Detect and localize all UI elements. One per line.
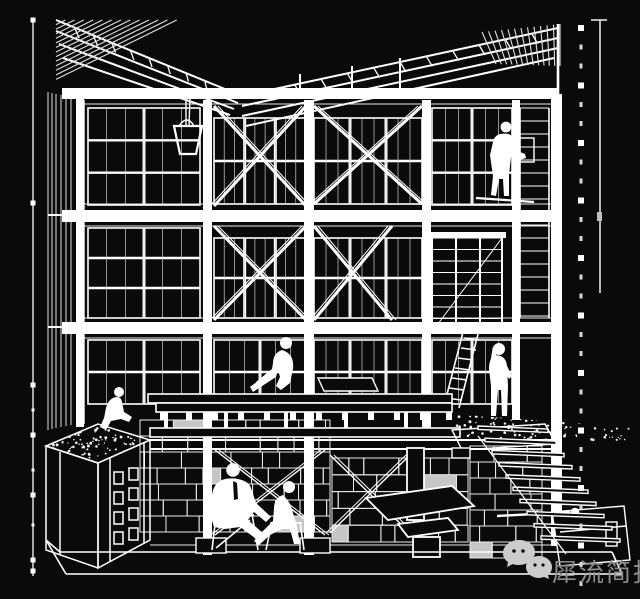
planter-box bbox=[46, 424, 150, 568]
person-standing-by-stair bbox=[489, 343, 512, 416]
person-crouching-on-planter bbox=[100, 387, 132, 430]
watermark-text: 犀流简报 bbox=[552, 559, 640, 587]
building-section-drawing: 犀流简报 bbox=[0, 0, 640, 599]
column-base bbox=[452, 448, 470, 458]
wechat-icon bbox=[503, 540, 552, 579]
column-base bbox=[196, 538, 226, 553]
low-bench bbox=[318, 378, 378, 391]
person-sitting-on-platform-edge bbox=[250, 337, 293, 392]
scaffold-tower bbox=[428, 232, 506, 332]
architectural-drawing-page: 犀流简报 bbox=[0, 0, 640, 599]
column-base bbox=[300, 538, 330, 553]
basement-table bbox=[366, 448, 474, 557]
x-bracing bbox=[210, 106, 426, 535]
window-grids bbox=[88, 108, 512, 404]
